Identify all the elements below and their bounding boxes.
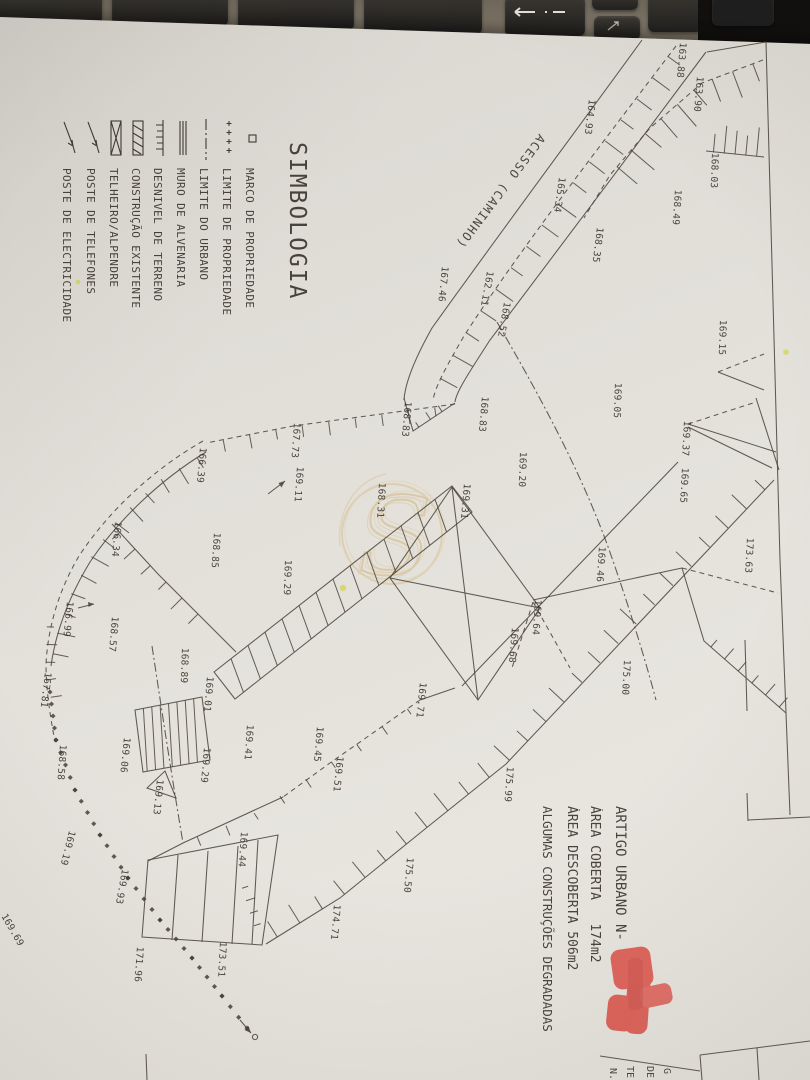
- photo-of-survey-plan: S S S: [0, 0, 810, 1080]
- overlay-marks: [0, 0, 810, 1080]
- highlight-specks: [76, 280, 789, 592]
- red-marker-redaction: [605, 945, 674, 1034]
